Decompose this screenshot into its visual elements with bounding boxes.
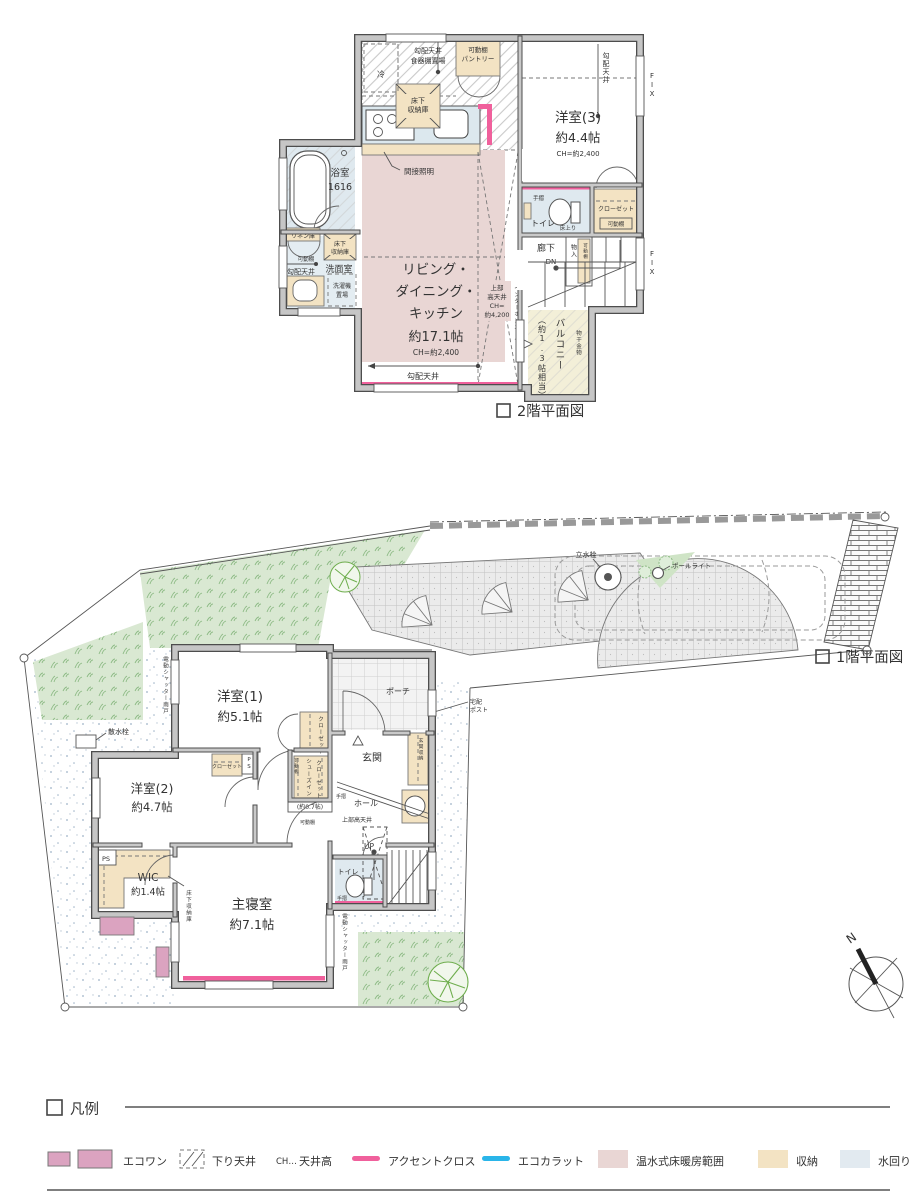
fix-window-mid: FIX: [636, 238, 656, 290]
legend-storage-label: 収納: [796, 1155, 818, 1168]
legend-ecocarat-label: エコカラット: [518, 1155, 584, 1168]
pantry-label: パントリー: [462, 55, 495, 63]
master-name: 主寝室: [232, 896, 273, 913]
standing-tap-label: 立水栓: [576, 550, 597, 559]
fridge-label: 冷: [377, 69, 385, 79]
delivery-post-l1: 宅配: [470, 698, 482, 706]
slope-ceiling-kitchen-label: 勾配天井: [414, 46, 442, 55]
floor-storage-wash-l2: 収納庫: [331, 248, 349, 256]
high-ceiling-l4: 約4,200: [484, 310, 509, 319]
yoshitsu3-ch: CH=約2,400: [556, 149, 599, 158]
hall-label: ホール: [354, 799, 378, 808]
closet2f-label: クローゼット: [598, 205, 634, 213]
wic-label: WIC: [138, 872, 159, 884]
indirect-light-label: 間接照明: [404, 166, 434, 176]
floor-storage-kitchen-label1: 床下: [411, 96, 425, 105]
legend-title: 凡例: [70, 1101, 99, 1118]
sic-shelf2-label: 可動棚: [300, 819, 315, 826]
hallway-label: 廊下: [537, 242, 555, 254]
high-ceiling-l1: 上部: [491, 283, 505, 292]
shutter-master-label: 電動シャッター雨戸: [341, 913, 348, 972]
closet2f-shelf-label: 可動棚: [608, 220, 625, 228]
sic-size-label: (約0.7帖): [297, 803, 323, 811]
floor2-title: 2階平面図: [497, 403, 584, 420]
legend-ceiling-height: CH… 天井高: [276, 1154, 332, 1168]
yoshitsu1-name: 洋室(1): [217, 688, 263, 705]
high-ceiling-l2: 高天井: [487, 292, 507, 301]
fix-window-top: FIX: [636, 56, 656, 116]
legend-accent-cross-label: アクセントクロス: [388, 1155, 475, 1168]
legend-ch-mark: CH…: [276, 1157, 297, 1167]
ldk-line2: ダイニング・: [396, 284, 477, 300]
floorplan-page: 床下 収納庫 冷 勾配天井 食器棚置場 可動棚 パントリー 間接照明 上部 高天…: [0, 0, 920, 1204]
legend-floor-heating: 温水式床暖房範囲: [598, 1150, 724, 1168]
hall-washbasin: [402, 790, 429, 823]
hall-rail-label: 手摺: [336, 793, 346, 800]
accent-cross-master: [183, 976, 325, 981]
compass-north-label: N: [844, 930, 859, 947]
legend-floor-heating-label: 温水式床暖房範囲: [636, 1154, 724, 1168]
floor2-title-text: 2階平面図: [517, 403, 584, 420]
ecoone-unit-2: [156, 947, 169, 977]
yoshitsu3-name: 洋室(3): [555, 109, 601, 126]
porch-label: ポーチ: [386, 687, 410, 696]
toilet2f-step-label: 床上り: [560, 224, 577, 232]
laundry-l1: 洗濯機: [333, 282, 351, 290]
genkan-label: 玄関: [362, 751, 382, 764]
legend-lowered-ceiling: 下り天井: [180, 1150, 256, 1168]
dish-shelf-label: 食器棚置場: [411, 56, 446, 65]
floor-storage-1f-label: 床下収納庫: [185, 889, 192, 923]
ldk-line3: キッチン: [409, 306, 463, 322]
closet-y2-label: クローゼット: [212, 763, 242, 770]
floor1-title: 1階平面図: [816, 649, 903, 666]
entrance-storage-label: 玄関収納: [418, 737, 423, 761]
floor2-plan: 床下 収納庫 冷 勾配天井 食器棚置場 可動棚 パントリー 間接照明 上部 高天…: [279, 34, 656, 420]
balcony-label: バルコニー: [554, 318, 566, 371]
fix-top-label: FIX: [648, 72, 656, 99]
toilet1f-rail-label: 手摺: [337, 895, 347, 902]
slope-ceiling-bottom-label: 勾配天井: [407, 371, 439, 381]
toilet1f-label: トイレ: [338, 868, 359, 876]
entrance-storage: 玄関収納: [408, 733, 428, 785]
toilet2f-rail-label: 手摺: [533, 194, 545, 202]
ps-y2-label: PS: [246, 757, 252, 771]
wash-slope-label: 勾配天井: [287, 267, 315, 276]
laundry-l2: 置場: [336, 291, 348, 299]
floor-storage-kitchen-label2: 収納庫: [408, 105, 429, 114]
tree-garden: [428, 962, 468, 1002]
wic-size-label: 約1.4帖: [131, 886, 166, 898]
mono-shelf-label: 可動棚: [583, 243, 588, 260]
upper-high-ceiling-label: 上部高天井: [342, 816, 372, 824]
bath-label: 浴室: [330, 167, 349, 179]
tree-north: [330, 562, 360, 592]
legend-ecoone: エコワン: [48, 1150, 167, 1168]
ldk-size: 約17.1帖: [409, 330, 464, 345]
high-ceiling-l3: CH=: [490, 302, 505, 310]
legend-water-area-label: 水回り: [878, 1155, 911, 1168]
legend-accent-cross: アクセントクロス: [352, 1155, 475, 1168]
mono-ire-label: 物入: [570, 243, 577, 258]
sic-label2: クローゼット: [315, 760, 322, 799]
ps-wic-label: PS: [102, 855, 110, 863]
legend-storage: 収納: [758, 1150, 818, 1168]
sic-shelf1-label: 可動棚: [294, 758, 299, 775]
delivery-post-l2: ポスト: [470, 706, 488, 714]
ldk-ch: CH=約2,400: [413, 347, 459, 357]
sprinkler-tap-label: 散水栓: [108, 727, 129, 736]
pantry-shelf-label: 可動棚: [468, 45, 488, 54]
floor1-title-text: 1階平面図: [836, 649, 903, 666]
legend-ecocarat: エコカラット: [482, 1155, 584, 1168]
sic-label1: シューズイン: [305, 758, 312, 797]
legend: 凡例 エコワン 下り天井 CH… 天井高 アクセントクロス エコカラット 温水式…: [47, 1100, 911, 1190]
balcony-size-label: （約1.3帖相当）: [538, 316, 547, 400]
yoshitsu3-size: 約4.4帖: [556, 130, 601, 145]
yoshitsu2-size: 約4.7帖: [131, 800, 172, 814]
legend-ceiling-height-label: 天井高: [299, 1154, 332, 1168]
toilet2f-label: トイレ: [531, 219, 555, 228]
ldk-line1: リビング・: [402, 262, 470, 278]
drying-fixture-label: 物干金物: [575, 329, 582, 357]
floor-storage-kitchen: 床下 収納庫: [396, 84, 440, 128]
bath-size-label: 1616: [328, 182, 352, 193]
master-size: 約7.1帖: [230, 917, 275, 932]
pole-light-label: ポールライト: [672, 562, 711, 570]
yoshitsu2-name: 洋室(2): [131, 781, 174, 796]
slope-ceiling-y3-label: 勾配天井: [602, 51, 610, 84]
compass: N: [844, 930, 903, 1018]
floor1-plan: 立水栓 ポールライト 散水栓: [20, 512, 903, 1018]
floorplan-canvas: 床下 収納庫 冷 勾配天井 食器棚置場 可動棚 パントリー 間接照明 上部 高天…: [0, 0, 920, 1204]
shutter-y1-label: 電動シャッター雨戸: [162, 656, 169, 715]
legend-lowered-ceiling-label: 下り天井: [212, 1154, 256, 1168]
wash-shelf-label: 可動棚: [298, 255, 315, 263]
washroom-label: 洗面室: [325, 263, 352, 275]
fix-mid-label: FIX: [648, 250, 656, 277]
legend-ecoone-label: エコワン: [123, 1155, 167, 1168]
floor-storage-wash-l1: 床下: [334, 240, 346, 248]
ecoone-unit-1: [100, 917, 134, 935]
yoshitsu1-size: 約5.1帖: [218, 709, 263, 724]
legend-water-area: 水回り: [840, 1150, 911, 1168]
